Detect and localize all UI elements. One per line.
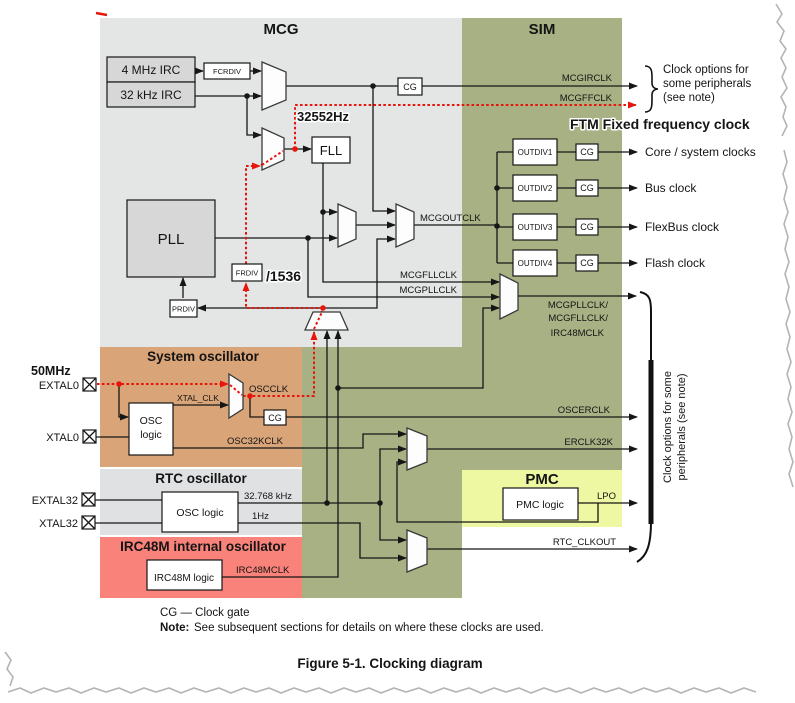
rtc-oscillator-title: RTC oscillator: [155, 471, 247, 486]
torn-edge-top-right: [776, 4, 787, 136]
annotation-50mhz: 50MHz: [31, 364, 71, 378]
label-4mhz-irc: 4 MHz IRC: [122, 63, 181, 77]
torn-edge-right: [783, 150, 793, 487]
label-mcgfllclk: MCGFLLCLK: [400, 270, 458, 281]
mux-erclk32k: [407, 428, 427, 470]
label-bus-clock: Bus clock: [645, 181, 697, 195]
system-oscillator-title: System oscillator: [147, 349, 260, 364]
note-text: See subsequent sections for details on w…: [194, 622, 544, 634]
label-erclk32k: ERCLK32K: [564, 437, 613, 448]
label-osc-logic-1: OSC: [140, 415, 163, 427]
label-cg-top: CG: [403, 82, 417, 92]
dot-irclk: [370, 83, 376, 89]
dot-red-fllin: [292, 146, 298, 152]
note-clock-options-3: (see note): [663, 92, 715, 104]
label-pll: PLL: [158, 231, 185, 248]
clocking-diagram: MCG SIM System oscillator RTC oscillator…: [0, 0, 795, 703]
label-prdiv: PRDIV: [172, 305, 195, 314]
label-32khz-irc: 32 kHz IRC: [120, 88, 182, 102]
label-mcgffclk: MCGFFCLK: [560, 93, 613, 104]
label-pllfll-out-1: MCGPLLCLK/: [548, 300, 609, 311]
label-oscerclk: OSCERCLK: [558, 405, 611, 416]
dot-32768-a: [324, 500, 330, 506]
dot-32k: [244, 93, 250, 99]
label-mcgoutclk: MCGOUTCLK: [420, 213, 481, 224]
brace-top-right: [645, 66, 658, 112]
annotation-ftm-note: FTM Fixed frequency clock: [570, 116, 750, 132]
dot-red-oscsel: [320, 305, 326, 311]
torn-edge-bottom: [8, 688, 756, 693]
note-label: Note:: [160, 622, 189, 634]
brace-right-side: [637, 292, 651, 562]
label-outdiv1: OUTDIV1: [518, 148, 553, 157]
pads: [82, 378, 96, 529]
dot-32768-b: [377, 500, 383, 506]
label-cg4: CG: [580, 258, 594, 268]
label-flexbus-clock: FlexBus clock: [645, 220, 720, 234]
label-core-clocks: Core / system clocks: [645, 145, 756, 159]
label-extal32: EXTAL32: [32, 495, 78, 507]
dot-red-extal0: [116, 381, 122, 387]
label-extal0: EXTAL0: [39, 380, 79, 392]
pad-xtal0: [83, 430, 96, 443]
label-rtc-osc-logic: OSC logic: [176, 507, 223, 519]
pad-extal0: [83, 378, 96, 391]
side-note-1: Clock options for some: [662, 371, 674, 483]
sim-title: SIM: [529, 21, 556, 38]
note-clock-options-2: some peripherals: [663, 78, 751, 90]
pad-extal32: [82, 493, 95, 506]
dot-fll-out: [320, 209, 326, 215]
dot-irc48-branch: [335, 385, 341, 391]
label-cg-osc: CG: [268, 413, 282, 423]
label-rtc-1hz: 1Hz: [252, 511, 269, 522]
label-xtal-clk: XTAL_CLK: [177, 393, 219, 403]
label-osc-logic-2: logic: [140, 429, 162, 441]
annotation-div1536: /1536: [266, 268, 301, 284]
label-irc48mclk: IRC48MCLK: [236, 565, 290, 576]
side-note-2: peripherals (see note): [676, 373, 688, 480]
label-cg3: CG: [580, 222, 594, 232]
label-rtc-clkout: RTC_CLKOUT: [553, 537, 616, 548]
dot-outdiv-a: [494, 185, 500, 191]
label-pllfll-out-2: MCGFLLCLK/: [548, 313, 608, 324]
label-mcgirclk: MCGIRCLK: [562, 73, 613, 84]
label-flash-clock: Flash clock: [645, 256, 706, 270]
label-cg2: CG: [580, 183, 594, 193]
irc48m-oscillator-title: IRC48M internal oscillator: [120, 539, 287, 554]
dot-pll-out: [305, 235, 311, 241]
annotation-32552hz: 32552Hz: [297, 109, 350, 124]
torn-artifact-red-mark: [96, 13, 107, 15]
mux-clks: [396, 204, 414, 247]
mux-pllfll-select: [338, 204, 356, 247]
label-pmc-logic: PMC logic: [516, 499, 564, 511]
label-fll: FLL: [320, 143, 342, 158]
label-oscclk: OSCCLK: [249, 384, 289, 395]
label-cg1: CG: [580, 147, 594, 157]
pmc-title: PMC: [525, 471, 559, 488]
label-lpo: LPO: [597, 491, 616, 502]
mux-rtc-clkout: [407, 530, 427, 572]
label-fcrdiv: FCRDIV: [213, 67, 241, 76]
label-irc48m-logic: IRC48M logic: [154, 573, 214, 584]
note-clock-options-1: Clock options for: [663, 64, 749, 76]
label-outdiv4: OUTDIV4: [518, 259, 553, 268]
label-frdiv: FRDIV: [236, 269, 259, 278]
label-mcgpllclk: MCGPLLCLK: [399, 285, 457, 296]
mux-oscsel-trapezoid: [305, 312, 348, 330]
label-rtc-32k: 32.768 kHz: [244, 491, 292, 502]
legend-cg: CG — Clock gate: [160, 607, 249, 619]
label-outdiv2: OUTDIV2: [518, 184, 553, 193]
label-pllfll-out-3: IRC48MCLK: [551, 328, 605, 339]
pad-xtal32: [82, 516, 95, 529]
dot-outdiv-b: [494, 223, 500, 229]
label-osc32kclk: OSC32KCLK: [227, 436, 284, 447]
figure-caption: Figure 5-1. Clocking diagram: [297, 656, 482, 671]
label-outdiv3: OUTDIV3: [518, 223, 553, 232]
region-sim-mid: [302, 347, 462, 598]
torn-edge-bottom-left: [5, 652, 13, 686]
label-xtal32: XTAL32: [39, 518, 78, 530]
mcg-title: MCG: [264, 21, 299, 38]
label-xtal0: XTAL0: [46, 432, 79, 444]
